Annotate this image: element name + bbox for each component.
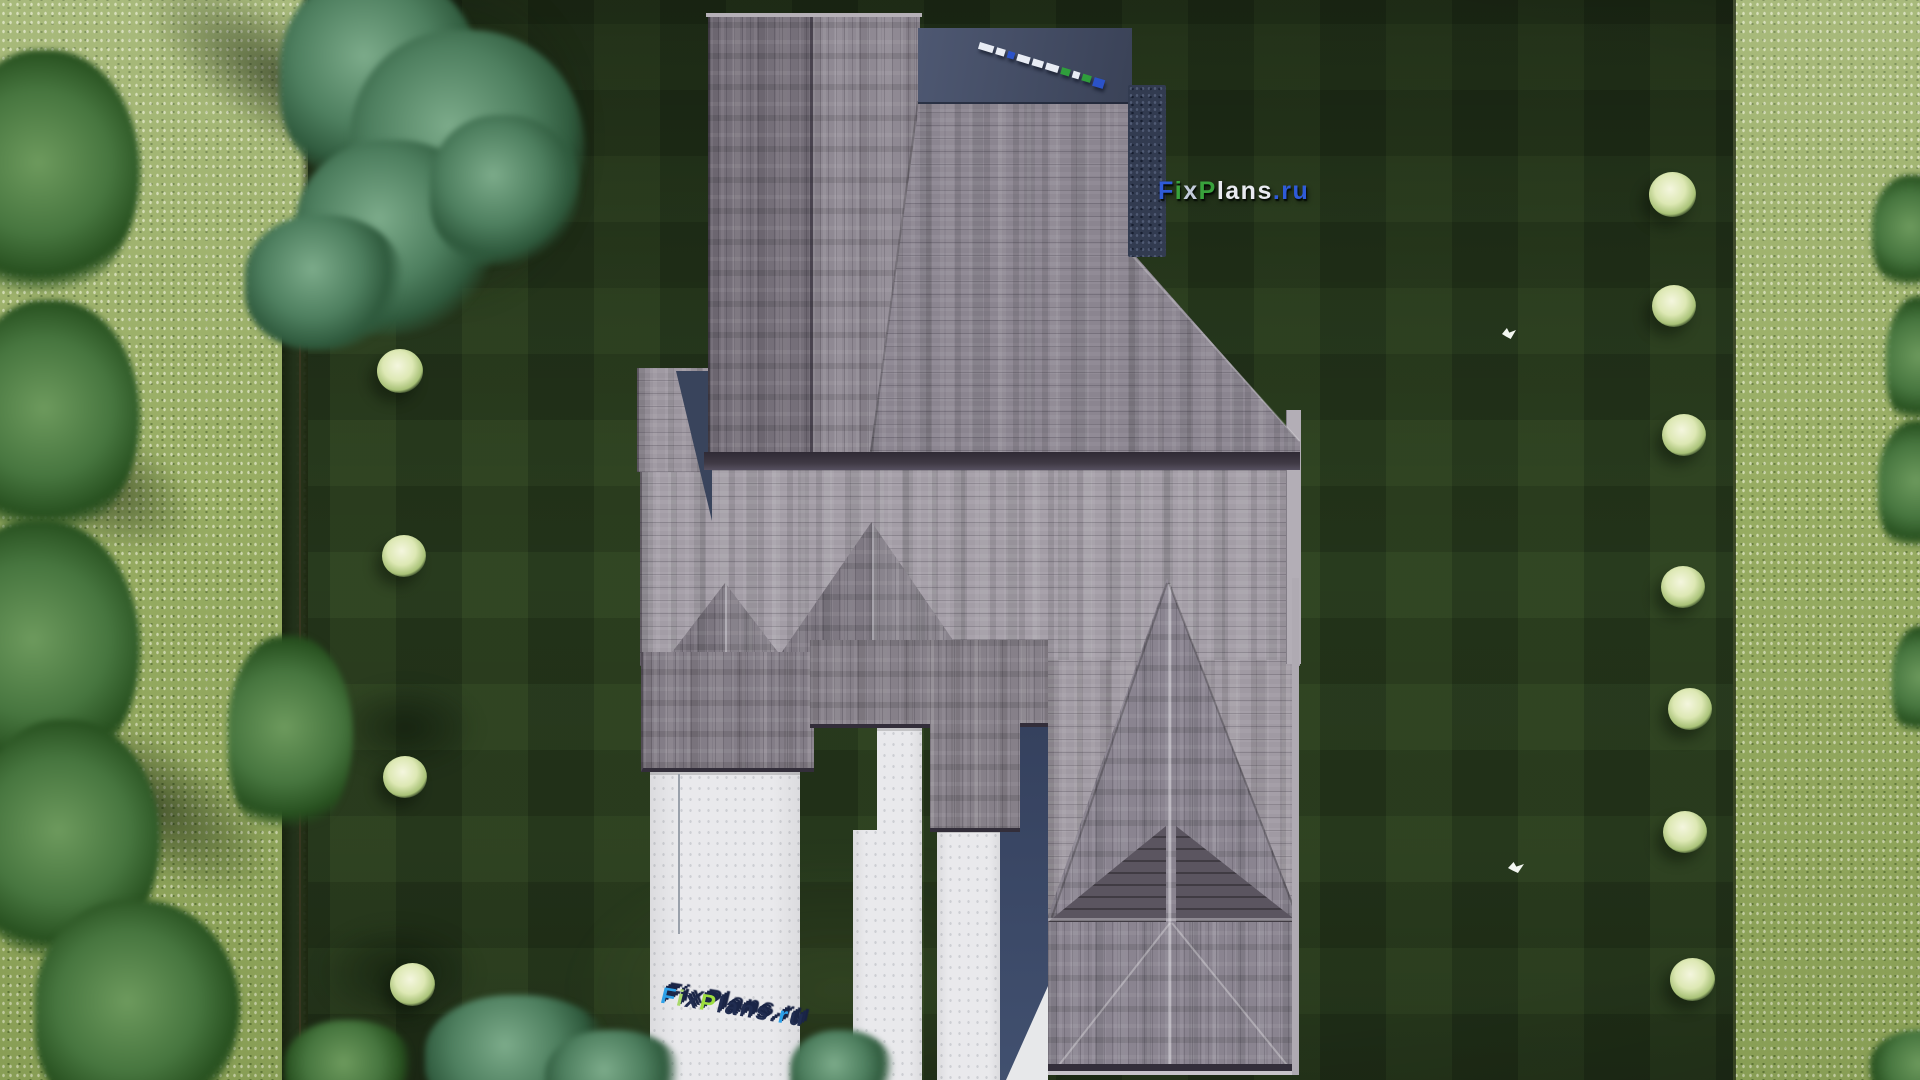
fixplans-watermark: FixPlans.ru [1158,179,1309,204]
roof-garage [641,652,814,772]
roof-ridge-center [1168,584,1171,1068]
white-bush [1670,958,1715,1001]
driveway-joint-line [678,774,680,934]
aerial-render-scene: FixPlans.ru FixPlans.ru [0,0,1920,1080]
logo-segment [1081,74,1092,83]
logo-segment [995,47,1006,56]
watermark-segment: F [1158,177,1175,205]
white-bush [383,756,427,798]
roof-top-fascia [706,13,922,17]
watermark-segment: i [1175,177,1183,205]
driveway-main [650,772,800,1080]
walkway-right [937,830,1000,1080]
fascia-right [1292,578,1299,1075]
white-bush [1668,688,1712,730]
white-bush [377,349,423,393]
eave-line [810,724,930,728]
eave-shadow-band [704,452,1300,470]
white-bush [1661,566,1705,608]
roof-cross-ridge [1048,918,1298,921]
logo-segment [1072,71,1081,80]
eave-line [930,828,1020,832]
roof-ridge-upper [810,16,813,462]
watermark-segment: .ru [1273,177,1309,205]
white-bush [1652,285,1696,327]
flat-roof-deck [918,28,1132,104]
fascia-bottom [1048,1071,1298,1075]
eave-line-bottom [1048,1064,1298,1071]
white-bush [382,535,426,577]
white-bush [1662,414,1706,456]
logo-segment [1007,51,1016,60]
eave-line [1020,723,1048,727]
white-bush [1663,811,1707,853]
white-bush [1649,172,1696,217]
white-bush [390,963,435,1006]
watermark-segment: lans [1217,177,1273,205]
watermark-segment: x [1183,177,1198,205]
shrub-shadow-strip [1128,85,1166,257]
watermark-segment: P [1199,177,1217,205]
roof-upper-west-plane [708,16,814,462]
logo-segment [1060,67,1071,76]
